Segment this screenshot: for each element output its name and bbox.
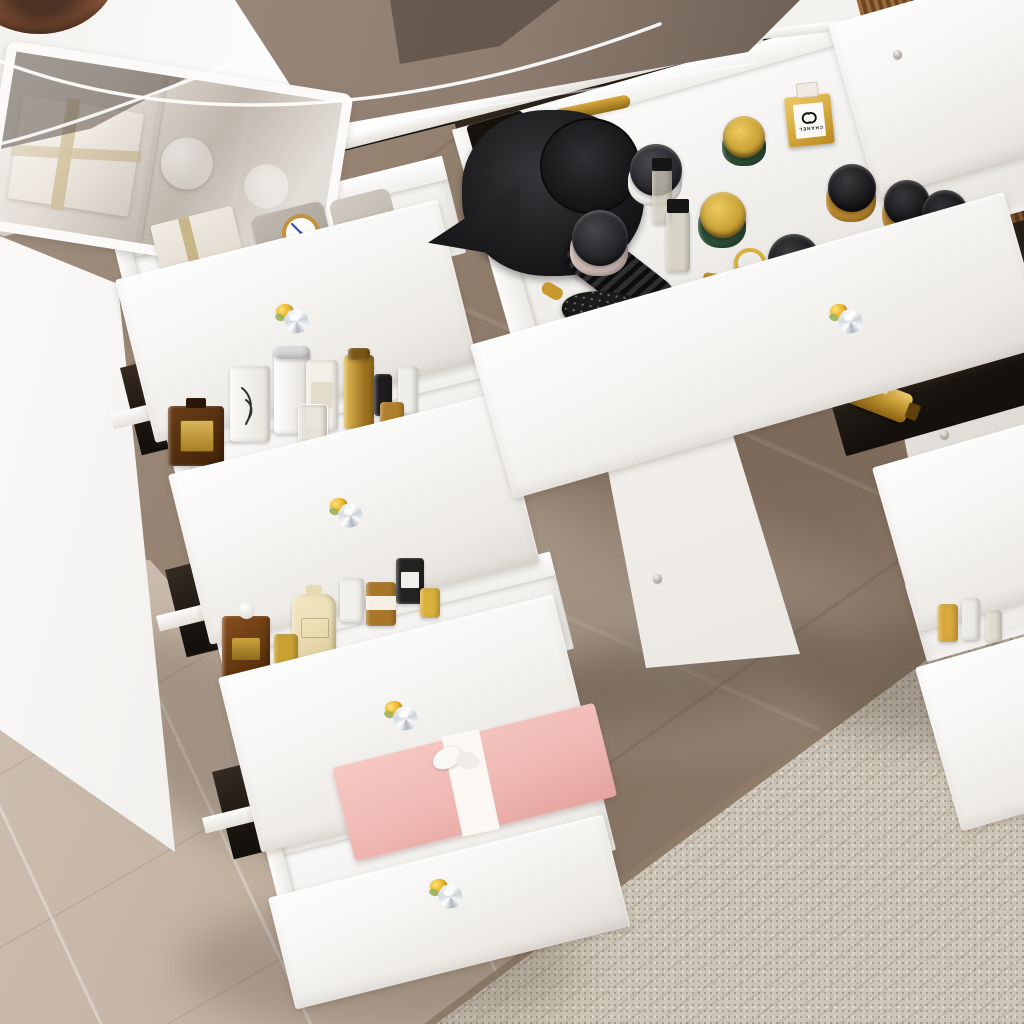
gold-bottle-cap [348,348,370,360]
earphone-cable [0,0,732,216]
white-bottle [340,578,364,622]
white-mini-bottle [962,598,980,640]
mauve-jar-black-lid [572,210,628,266]
knob-shine [444,889,451,896]
pink-box-ribbon [442,729,500,837]
clear-mini-bottle [986,610,1002,642]
crystal-knob [384,698,420,732]
knob-shine [399,711,406,718]
screw [653,574,662,583]
amber-flacon [168,406,224,466]
silver-cap [274,346,310,359]
chanel-cap [796,81,819,98]
chanel-bottle: CHANEL [784,93,835,148]
amber-jar-labeled [366,582,396,626]
gold-mini-bottle [938,604,958,642]
crystal-knob [329,495,365,529]
knob-shine [290,314,297,321]
crystal-knob [829,301,865,335]
white-sphere-stopper [238,602,255,619]
cc-logo-icon [799,110,820,125]
knob-shine [844,314,851,321]
crystal-knob [275,301,311,335]
screw [893,50,902,59]
amber-jar-black-lid [828,164,876,212]
gold-bottle [344,355,374,429]
gold-mini-bottle [420,588,440,618]
chanel-label: CHANEL [793,102,826,139]
clear-bottle-black-cap [666,210,690,272]
crystal-knob [429,876,465,910]
knob-shine [344,508,351,515]
white-bottle-feather [230,366,270,442]
screw [940,430,949,439]
vanity-product-photo: CHANEL LCRAC [0,0,1024,1024]
